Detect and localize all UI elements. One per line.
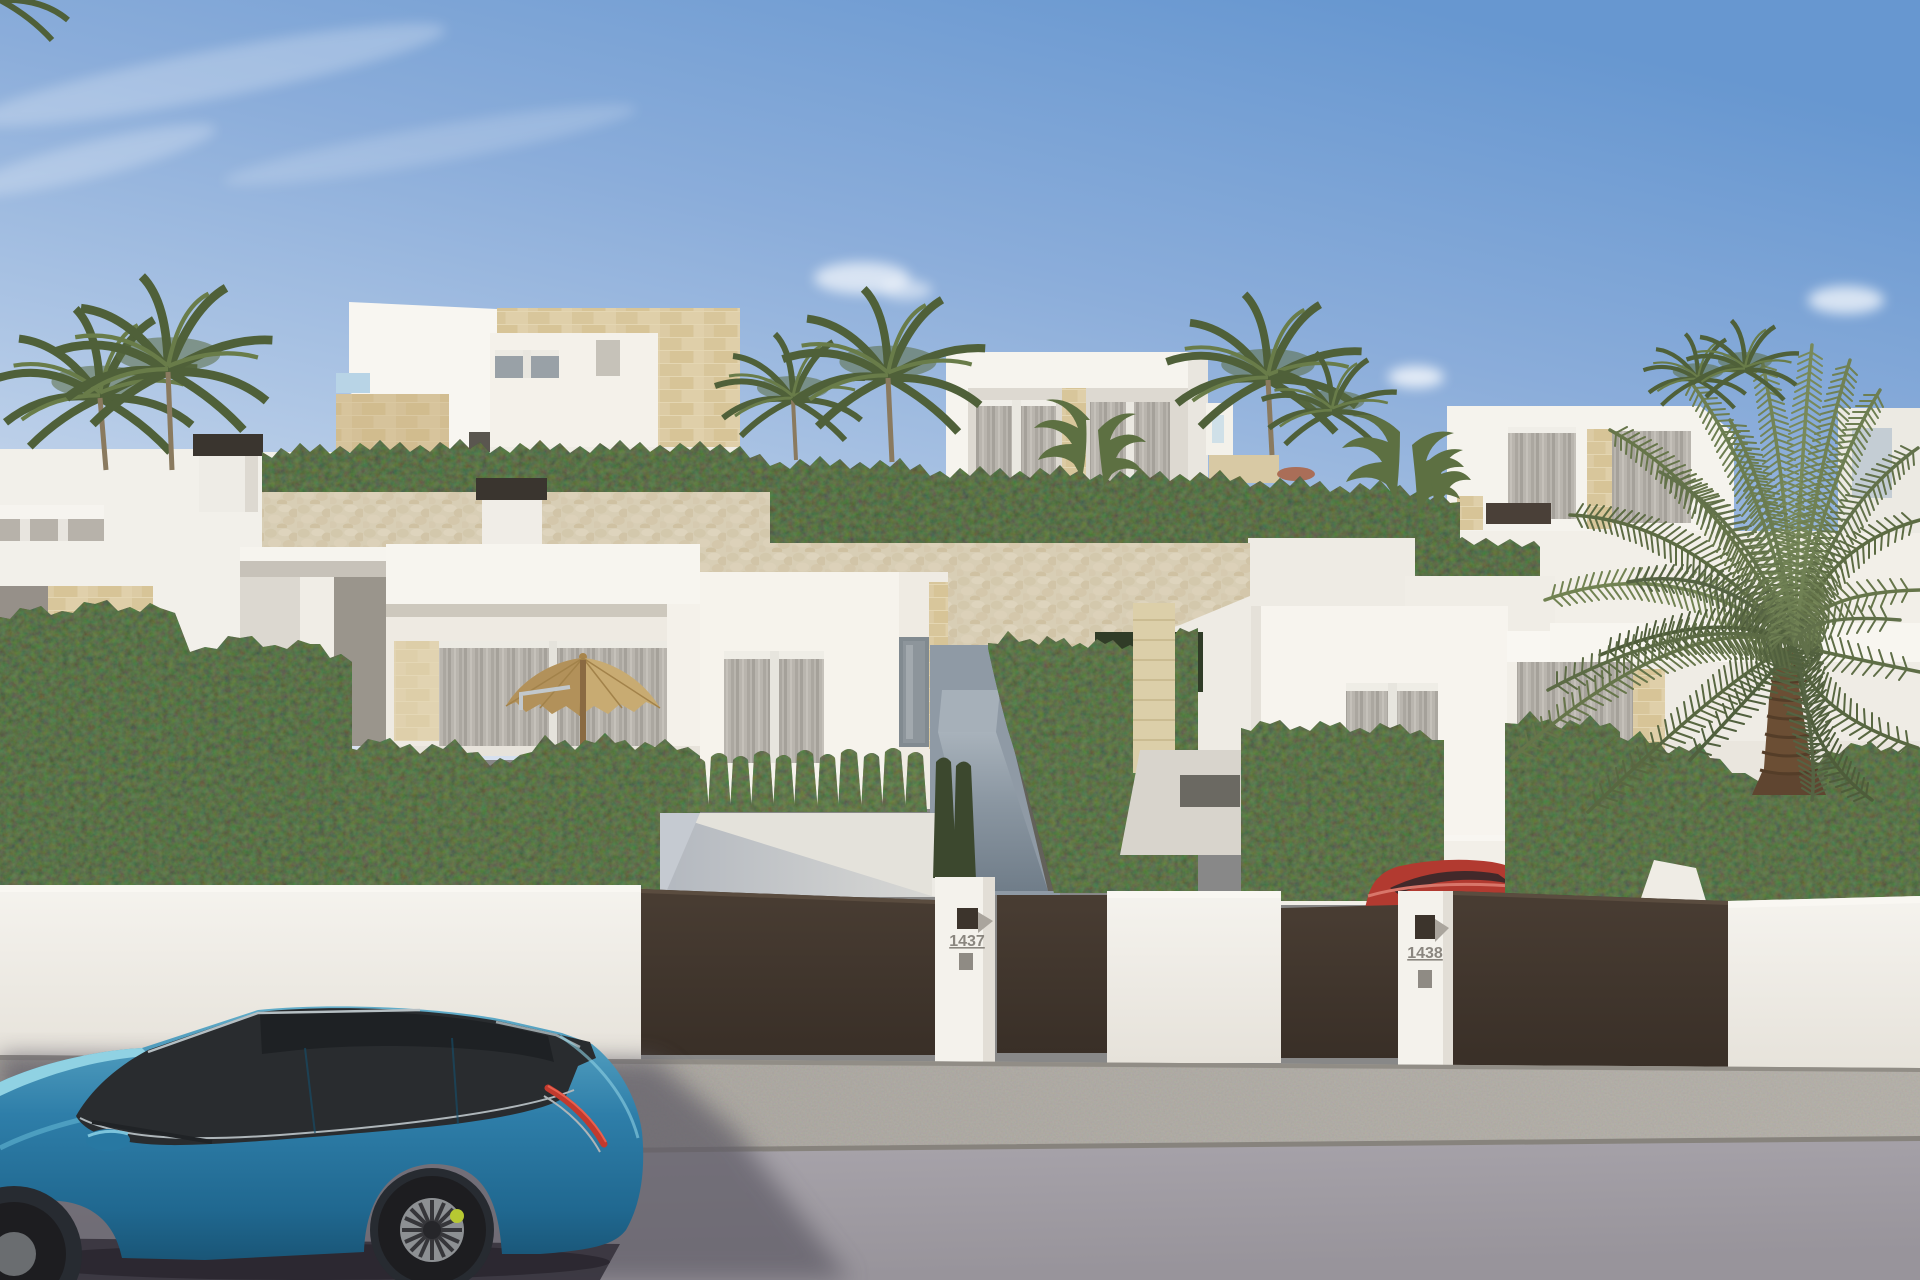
svg-text:1437: 1437 [949, 933, 985, 950]
svg-text:1438: 1438 [1407, 945, 1443, 962]
